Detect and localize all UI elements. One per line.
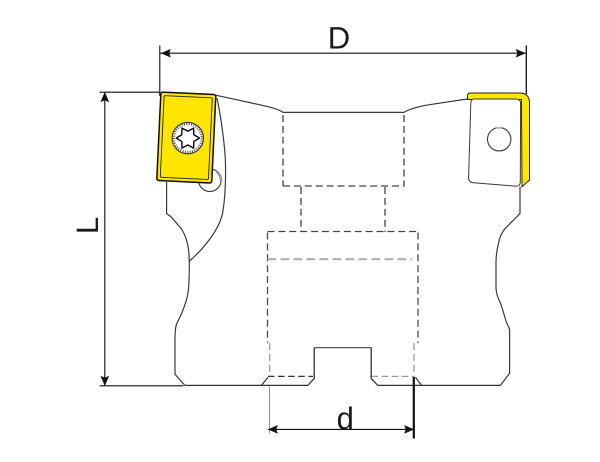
svg-text:L: L: [70, 217, 105, 234]
svg-text:d: d: [337, 401, 354, 436]
svg-text:D: D: [328, 21, 350, 56]
